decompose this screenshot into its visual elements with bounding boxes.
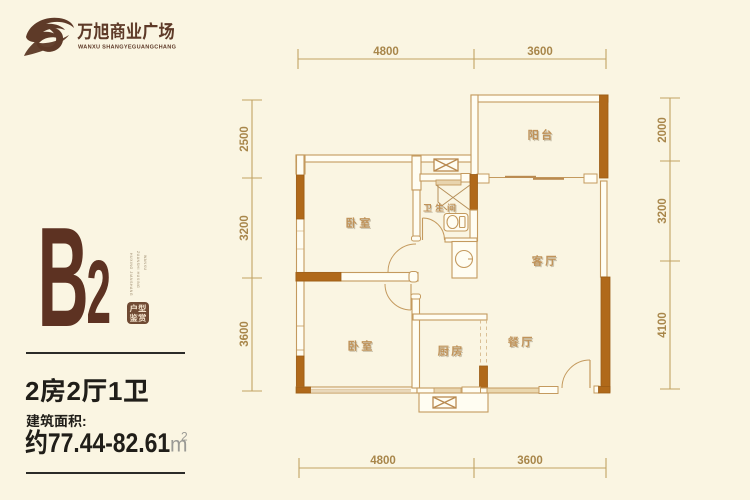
svg-text:3600: 3600 (517, 455, 543, 467)
svg-text:3200: 3200 (657, 198, 669, 224)
svg-text:3600: 3600 (239, 321, 251, 347)
svg-text:B: B (38, 197, 89, 356)
svg-text:HUXING JIANSHANG: HUXING JIANSHANG (129, 253, 133, 296)
svg-text:4800: 4800 (370, 455, 396, 467)
svg-text:ZUANSHI HUXING: ZUANSHI HUXING (136, 251, 140, 288)
svg-text:3200: 3200 (239, 215, 251, 241)
svg-text:WANXU SHANGYEGUANGCHANG: WANXU SHANGYEGUANGCHANG (78, 45, 176, 51)
svg-text:2000: 2000 (657, 117, 669, 143)
svg-text:4800: 4800 (373, 46, 399, 58)
svg-text:WANXU: WANXU (143, 255, 147, 271)
svg-text:2: 2 (87, 243, 112, 343)
svg-text:2500: 2500 (239, 126, 251, 152)
svg-text:2: 2 (181, 430, 188, 444)
svg-text:4100: 4100 (657, 312, 669, 338)
svg-text:3600: 3600 (527, 46, 553, 58)
